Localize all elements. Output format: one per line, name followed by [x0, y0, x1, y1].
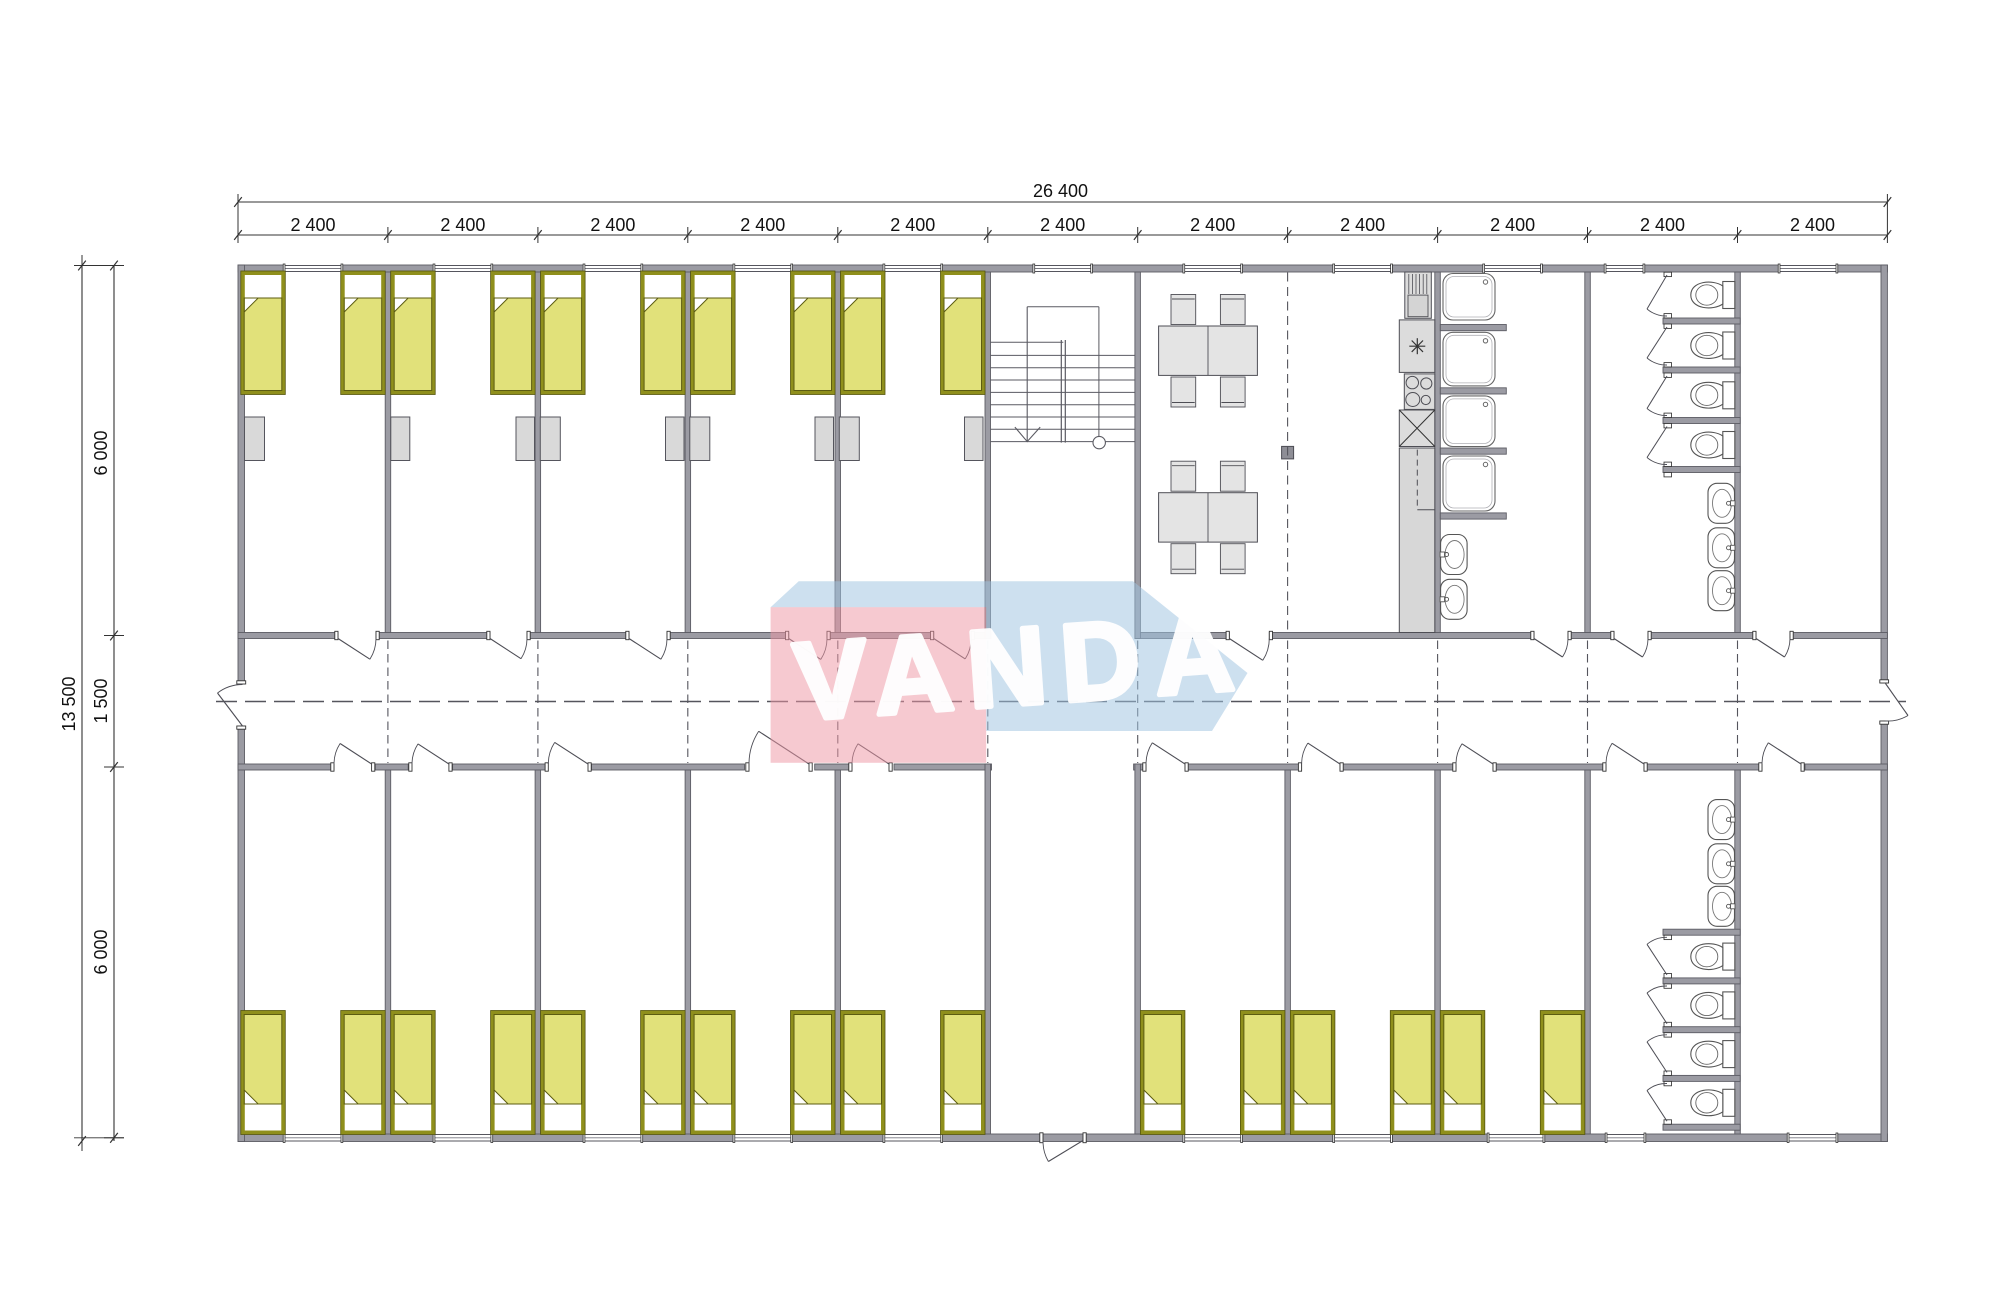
svg-text:2 400: 2 400 — [1040, 215, 1085, 235]
svg-text:26 400: 26 400 — [1033, 181, 1088, 201]
svg-text:2 400: 2 400 — [290, 215, 335, 235]
svg-text:2 400: 2 400 — [1640, 215, 1685, 235]
svg-text:6 000: 6 000 — [91, 430, 111, 475]
svg-text:2 400: 2 400 — [740, 215, 785, 235]
svg-text:6 000: 6 000 — [91, 929, 111, 974]
svg-text:2 400: 2 400 — [890, 215, 935, 235]
svg-text:2 400: 2 400 — [1790, 215, 1835, 235]
svg-text:2 400: 2 400 — [1190, 215, 1235, 235]
svg-text:2 400: 2 400 — [1490, 215, 1535, 235]
svg-text:2 400: 2 400 — [440, 215, 485, 235]
svg-text:1 500: 1 500 — [91, 678, 111, 723]
svg-text:2 400: 2 400 — [1340, 215, 1385, 235]
svg-text:2 400: 2 400 — [590, 215, 635, 235]
svg-text:13 500: 13 500 — [59, 676, 79, 731]
